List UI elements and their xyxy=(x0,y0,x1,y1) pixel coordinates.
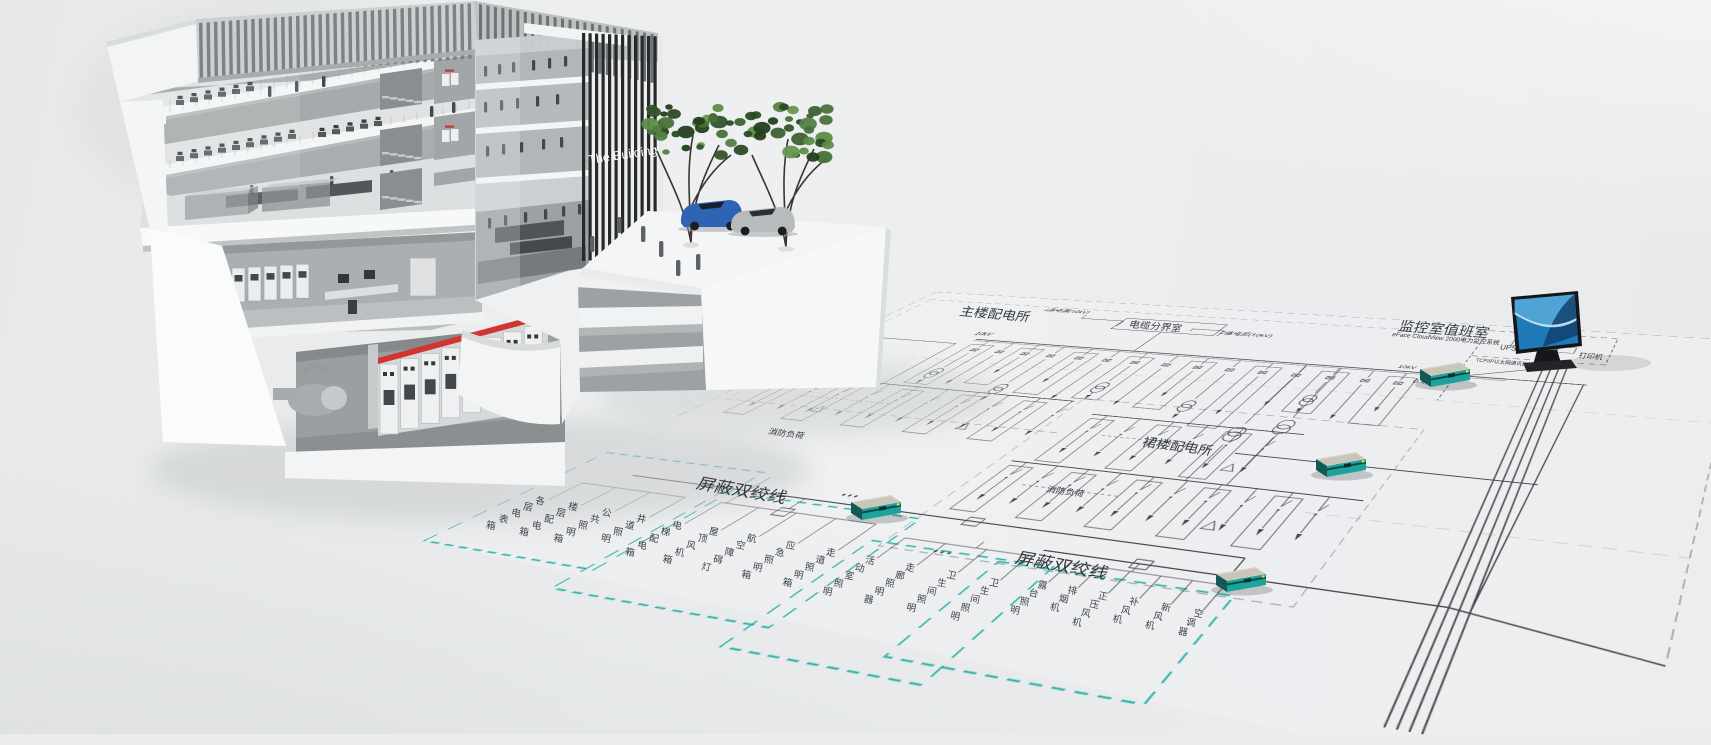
svg-text:箱: 箱 xyxy=(518,525,530,539)
svg-text:明: 明 xyxy=(752,561,764,574)
svg-text:配: 配 xyxy=(543,513,555,526)
svg-text:机: 机 xyxy=(1144,619,1156,633)
svg-text:照: 照 xyxy=(612,526,624,539)
svg-text:道: 道 xyxy=(624,519,636,533)
svg-text:顶: 顶 xyxy=(697,533,709,546)
svg-text:明: 明 xyxy=(905,602,917,615)
svg-text:器: 器 xyxy=(1177,626,1189,639)
svg-text:箱: 箱 xyxy=(553,532,565,546)
svg-text:活: 活 xyxy=(864,554,876,568)
svg-text:照: 照 xyxy=(763,554,775,567)
svg-text:机: 机 xyxy=(1111,613,1123,627)
svg-text:灯: 灯 xyxy=(700,561,712,574)
svg-text:卫: 卫 xyxy=(946,570,958,583)
svg-text:应: 应 xyxy=(785,539,797,553)
svg-text:表: 表 xyxy=(498,513,510,527)
svg-text:明: 明 xyxy=(822,586,834,599)
svg-text:电: 电 xyxy=(636,539,648,553)
svg-text:机: 机 xyxy=(1049,601,1061,615)
svg-text:间: 间 xyxy=(926,585,938,599)
svg-text:航: 航 xyxy=(746,532,758,546)
svg-text:道: 道 xyxy=(814,553,826,567)
svg-text:明: 明 xyxy=(873,586,885,599)
svg-text:照: 照 xyxy=(577,520,589,533)
svg-text:公: 公 xyxy=(601,507,613,520)
svg-text:廊: 廊 xyxy=(894,569,906,583)
svg-text:照: 照 xyxy=(884,578,896,591)
svg-text:机: 机 xyxy=(674,546,686,560)
svg-text:梯: 梯 xyxy=(660,525,672,539)
svg-text:UPS: UPS xyxy=(1499,343,1518,352)
svg-text:主楼配电所: 主楼配电所 xyxy=(958,304,1033,323)
svg-text:风: 风 xyxy=(685,540,697,553)
svg-text:照: 照 xyxy=(916,594,928,607)
svg-text:明: 明 xyxy=(600,533,612,546)
svg-text:走: 走 xyxy=(825,547,837,560)
svg-text:照: 照 xyxy=(959,602,971,615)
svg-text:共: 共 xyxy=(589,513,601,526)
svg-text:明: 明 xyxy=(793,569,805,582)
svg-text:碍: 碍 xyxy=(712,554,724,567)
svg-text:室: 室 xyxy=(843,569,855,583)
svg-text:箱: 箱 xyxy=(782,576,794,590)
svg-text:障: 障 xyxy=(723,546,735,560)
svg-text:生: 生 xyxy=(936,576,948,590)
svg-text:屋: 屋 xyxy=(708,526,720,539)
svg-text:裙楼配电所: 裙楼配电所 xyxy=(1140,435,1215,457)
svg-text:照: 照 xyxy=(833,578,845,591)
svg-text:井: 井 xyxy=(635,512,647,526)
svg-text:机: 机 xyxy=(1071,616,1083,630)
svg-text:急: 急 xyxy=(774,546,786,560)
svg-text:器: 器 xyxy=(863,594,875,607)
svg-text:电缆分界室: 电缆分界室 xyxy=(1127,318,1184,334)
svg-text:走: 走 xyxy=(904,562,916,575)
svg-text:明: 明 xyxy=(949,611,961,624)
svg-text:TCP/IP以太网通讯协议: TCP/IP以太网通讯协议 xyxy=(1475,356,1535,368)
svg-text:消防负荷: 消防负荷 xyxy=(1045,484,1087,499)
svg-text:配: 配 xyxy=(648,533,660,546)
svg-text:箱: 箱 xyxy=(624,546,636,560)
svg-text:明: 明 xyxy=(565,526,577,539)
svg-text:空: 空 xyxy=(735,539,747,553)
svg-text:箱: 箱 xyxy=(485,519,497,533)
svg-text:电: 电 xyxy=(531,519,543,533)
svg-text:明: 明 xyxy=(1009,604,1021,617)
svg-text:箱: 箱 xyxy=(740,568,752,582)
svg-text:屏蔽双绞线: 屏蔽双绞线 xyxy=(1013,549,1113,583)
svg-text:照: 照 xyxy=(804,562,816,575)
svg-text:电: 电 xyxy=(671,519,683,533)
svg-text:箱: 箱 xyxy=(662,553,674,567)
svg-text:动: 动 xyxy=(854,562,866,575)
